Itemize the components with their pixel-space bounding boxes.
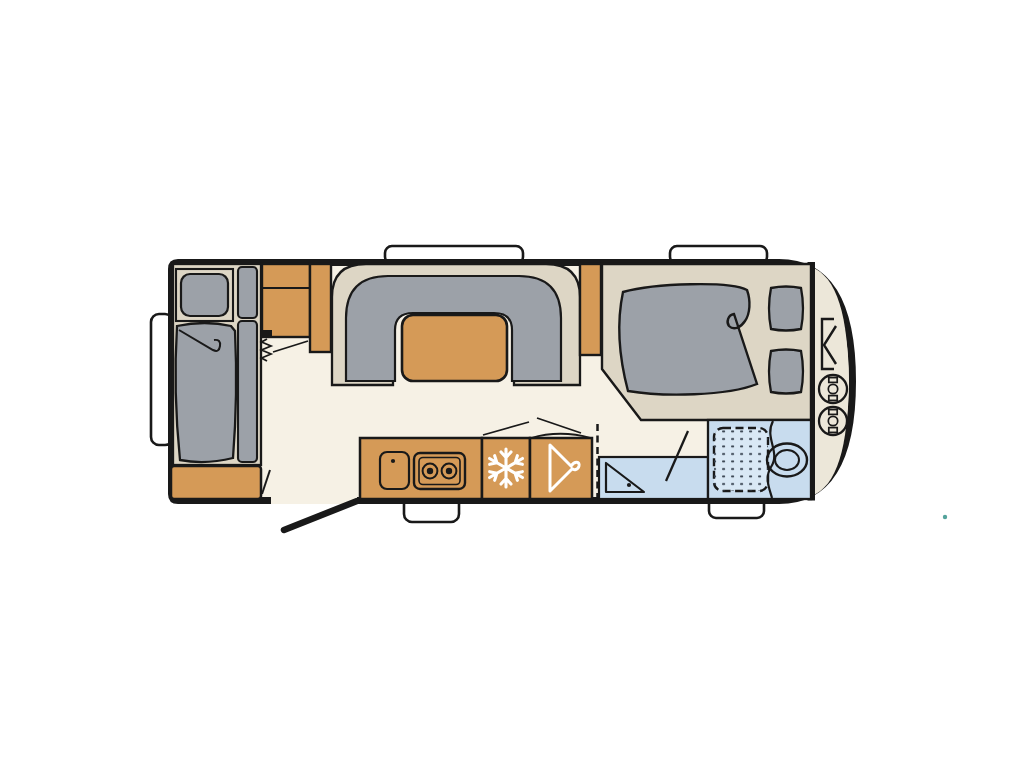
burner-left	[427, 468, 433, 474]
basin-faucet-dot	[627, 483, 631, 487]
rear-lounge	[171, 264, 261, 499]
single-bed-mattress	[176, 323, 237, 462]
wardrobe	[530, 438, 592, 499]
shower-tray-dots	[714, 428, 768, 491]
pillow	[181, 274, 228, 316]
mid-cabinet-column	[580, 264, 601, 355]
caravan-floorplan-svg	[0, 0, 1024, 768]
faucet-dot	[391, 459, 395, 463]
cabinet-column	[310, 264, 331, 352]
kitchen-sink	[380, 452, 409, 489]
side-cushion-top	[238, 267, 257, 318]
storage-chest	[171, 466, 261, 499]
gas-bottle-icon	[819, 375, 847, 403]
caravan-floorplan-page	[0, 0, 1024, 768]
front-bedroom	[602, 264, 811, 420]
cabinet-tall	[262, 264, 310, 337]
burner-right	[446, 468, 452, 474]
gas-bottle-icon	[819, 407, 847, 435]
dinette	[332, 264, 580, 385]
partition-hinge-block	[262, 330, 272, 338]
dinette-table	[402, 315, 507, 381]
side-cushion-long	[238, 321, 257, 462]
pillow-bottom	[769, 350, 803, 394]
duvet	[619, 284, 757, 394]
artifact-dot	[943, 515, 947, 519]
pillow-top	[769, 287, 803, 331]
